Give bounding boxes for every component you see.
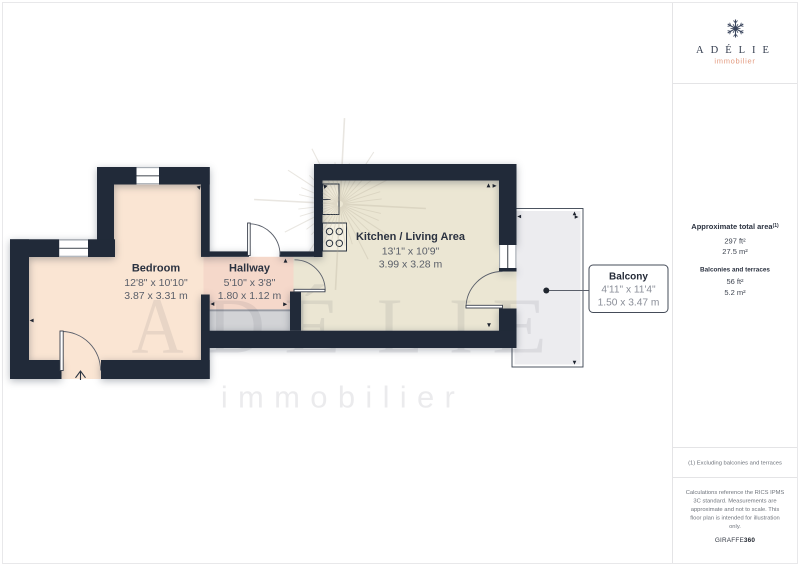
svg-text:(1) Excluding balconies and te: (1) Excluding balconies and terraces bbox=[688, 461, 782, 467]
svg-text:297 ft²: 297 ft² bbox=[724, 237, 746, 246]
svg-text:1.50 x 3.47 m: 1.50 x 3.47 m bbox=[598, 298, 660, 309]
svg-text:Kitchen / Living Area: Kitchen / Living Area bbox=[356, 231, 466, 243]
svg-text:approximate and not to scale.: approximate and not to scale. This bbox=[691, 507, 780, 513]
svg-text:L: L bbox=[377, 284, 423, 371]
svg-text:immobilier: immobilier bbox=[714, 57, 755, 66]
svg-text:Calculations reference the RIC: Calculations reference the RICS IPMS bbox=[686, 490, 785, 496]
svg-text:3C standard. Measurements are: 3C standard. Measurements are bbox=[693, 499, 776, 505]
svg-text:GIRAFFE360: GIRAFFE360 bbox=[715, 537, 756, 544]
svg-text:1.80 x 1.12 m: 1.80 x 1.12 m bbox=[218, 290, 282, 302]
svg-text:Bedroom: Bedroom bbox=[132, 263, 181, 275]
svg-text:Balconies and terraces: Balconies and terraces bbox=[700, 267, 770, 274]
svg-text:I: I bbox=[449, 284, 473, 371]
svg-text:ADÉLIE: ADÉLIE bbox=[696, 44, 776, 56]
svg-text:only.: only. bbox=[729, 524, 741, 530]
svg-text:Hallway: Hallway bbox=[229, 263, 271, 275]
svg-text:floor plan is intended for ill: floor plan is intended for illustration bbox=[690, 516, 780, 522]
svg-text:immobilier: immobilier bbox=[221, 380, 465, 415]
svg-text:Approximate total area(1): Approximate total area(1) bbox=[691, 222, 779, 231]
svg-text:3.87 x 3.31 m: 3.87 x 3.31 m bbox=[124, 290, 188, 302]
svg-text:13'1" x 10'9": 13'1" x 10'9" bbox=[382, 246, 440, 258]
svg-text:3.99 x 3.28 m: 3.99 x 3.28 m bbox=[379, 258, 443, 270]
svg-text:12'8" x 10'10": 12'8" x 10'10" bbox=[124, 277, 188, 289]
svg-text:27.5 m²: 27.5 m² bbox=[722, 247, 748, 256]
svg-text:5.2 m²: 5.2 m² bbox=[724, 288, 746, 297]
svg-text:4'11" x 11'4": 4'11" x 11'4" bbox=[601, 285, 656, 296]
svg-text:Balcony: Balcony bbox=[609, 272, 648, 283]
svg-text:5'10" x 3'8": 5'10" x 3'8" bbox=[224, 277, 276, 289]
svg-text:56 ft²: 56 ft² bbox=[726, 277, 744, 286]
